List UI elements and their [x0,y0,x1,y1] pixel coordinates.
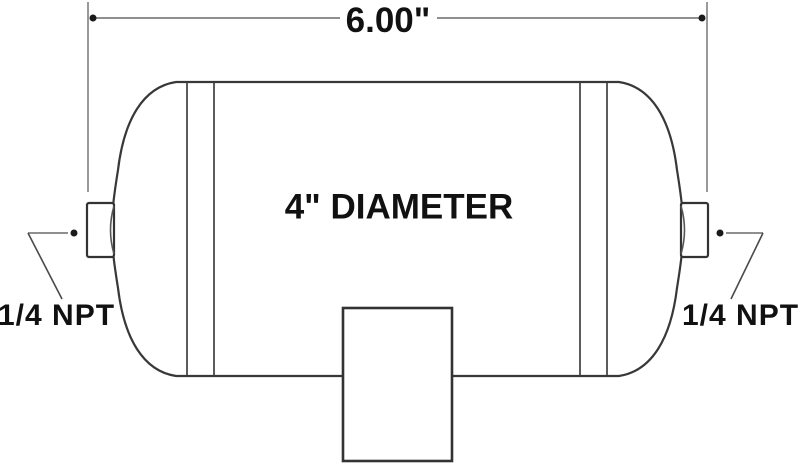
leader-arrow-left [71,230,78,237]
leader-arrow-right [717,230,724,237]
leader-diagonal-right [731,233,763,299]
dimension-arrow-left [90,15,97,22]
npt-label-left: 1/4 NPT [0,301,115,331]
drawing-svg [0,0,800,467]
npt-label-right: 1/4 NPT [682,301,799,331]
diameter-label: 4" DIAMETER [285,190,514,225]
technical-drawing-canvas: 6.00" 4" DIAMETER 1/4 NPT 1/4 NPT [0,0,800,467]
leader-diagonal-left [28,233,62,299]
dimension-arrow-right [699,15,706,22]
bottom-port-block [343,308,452,461]
length-dimension-label: 6.00" [346,3,431,38]
